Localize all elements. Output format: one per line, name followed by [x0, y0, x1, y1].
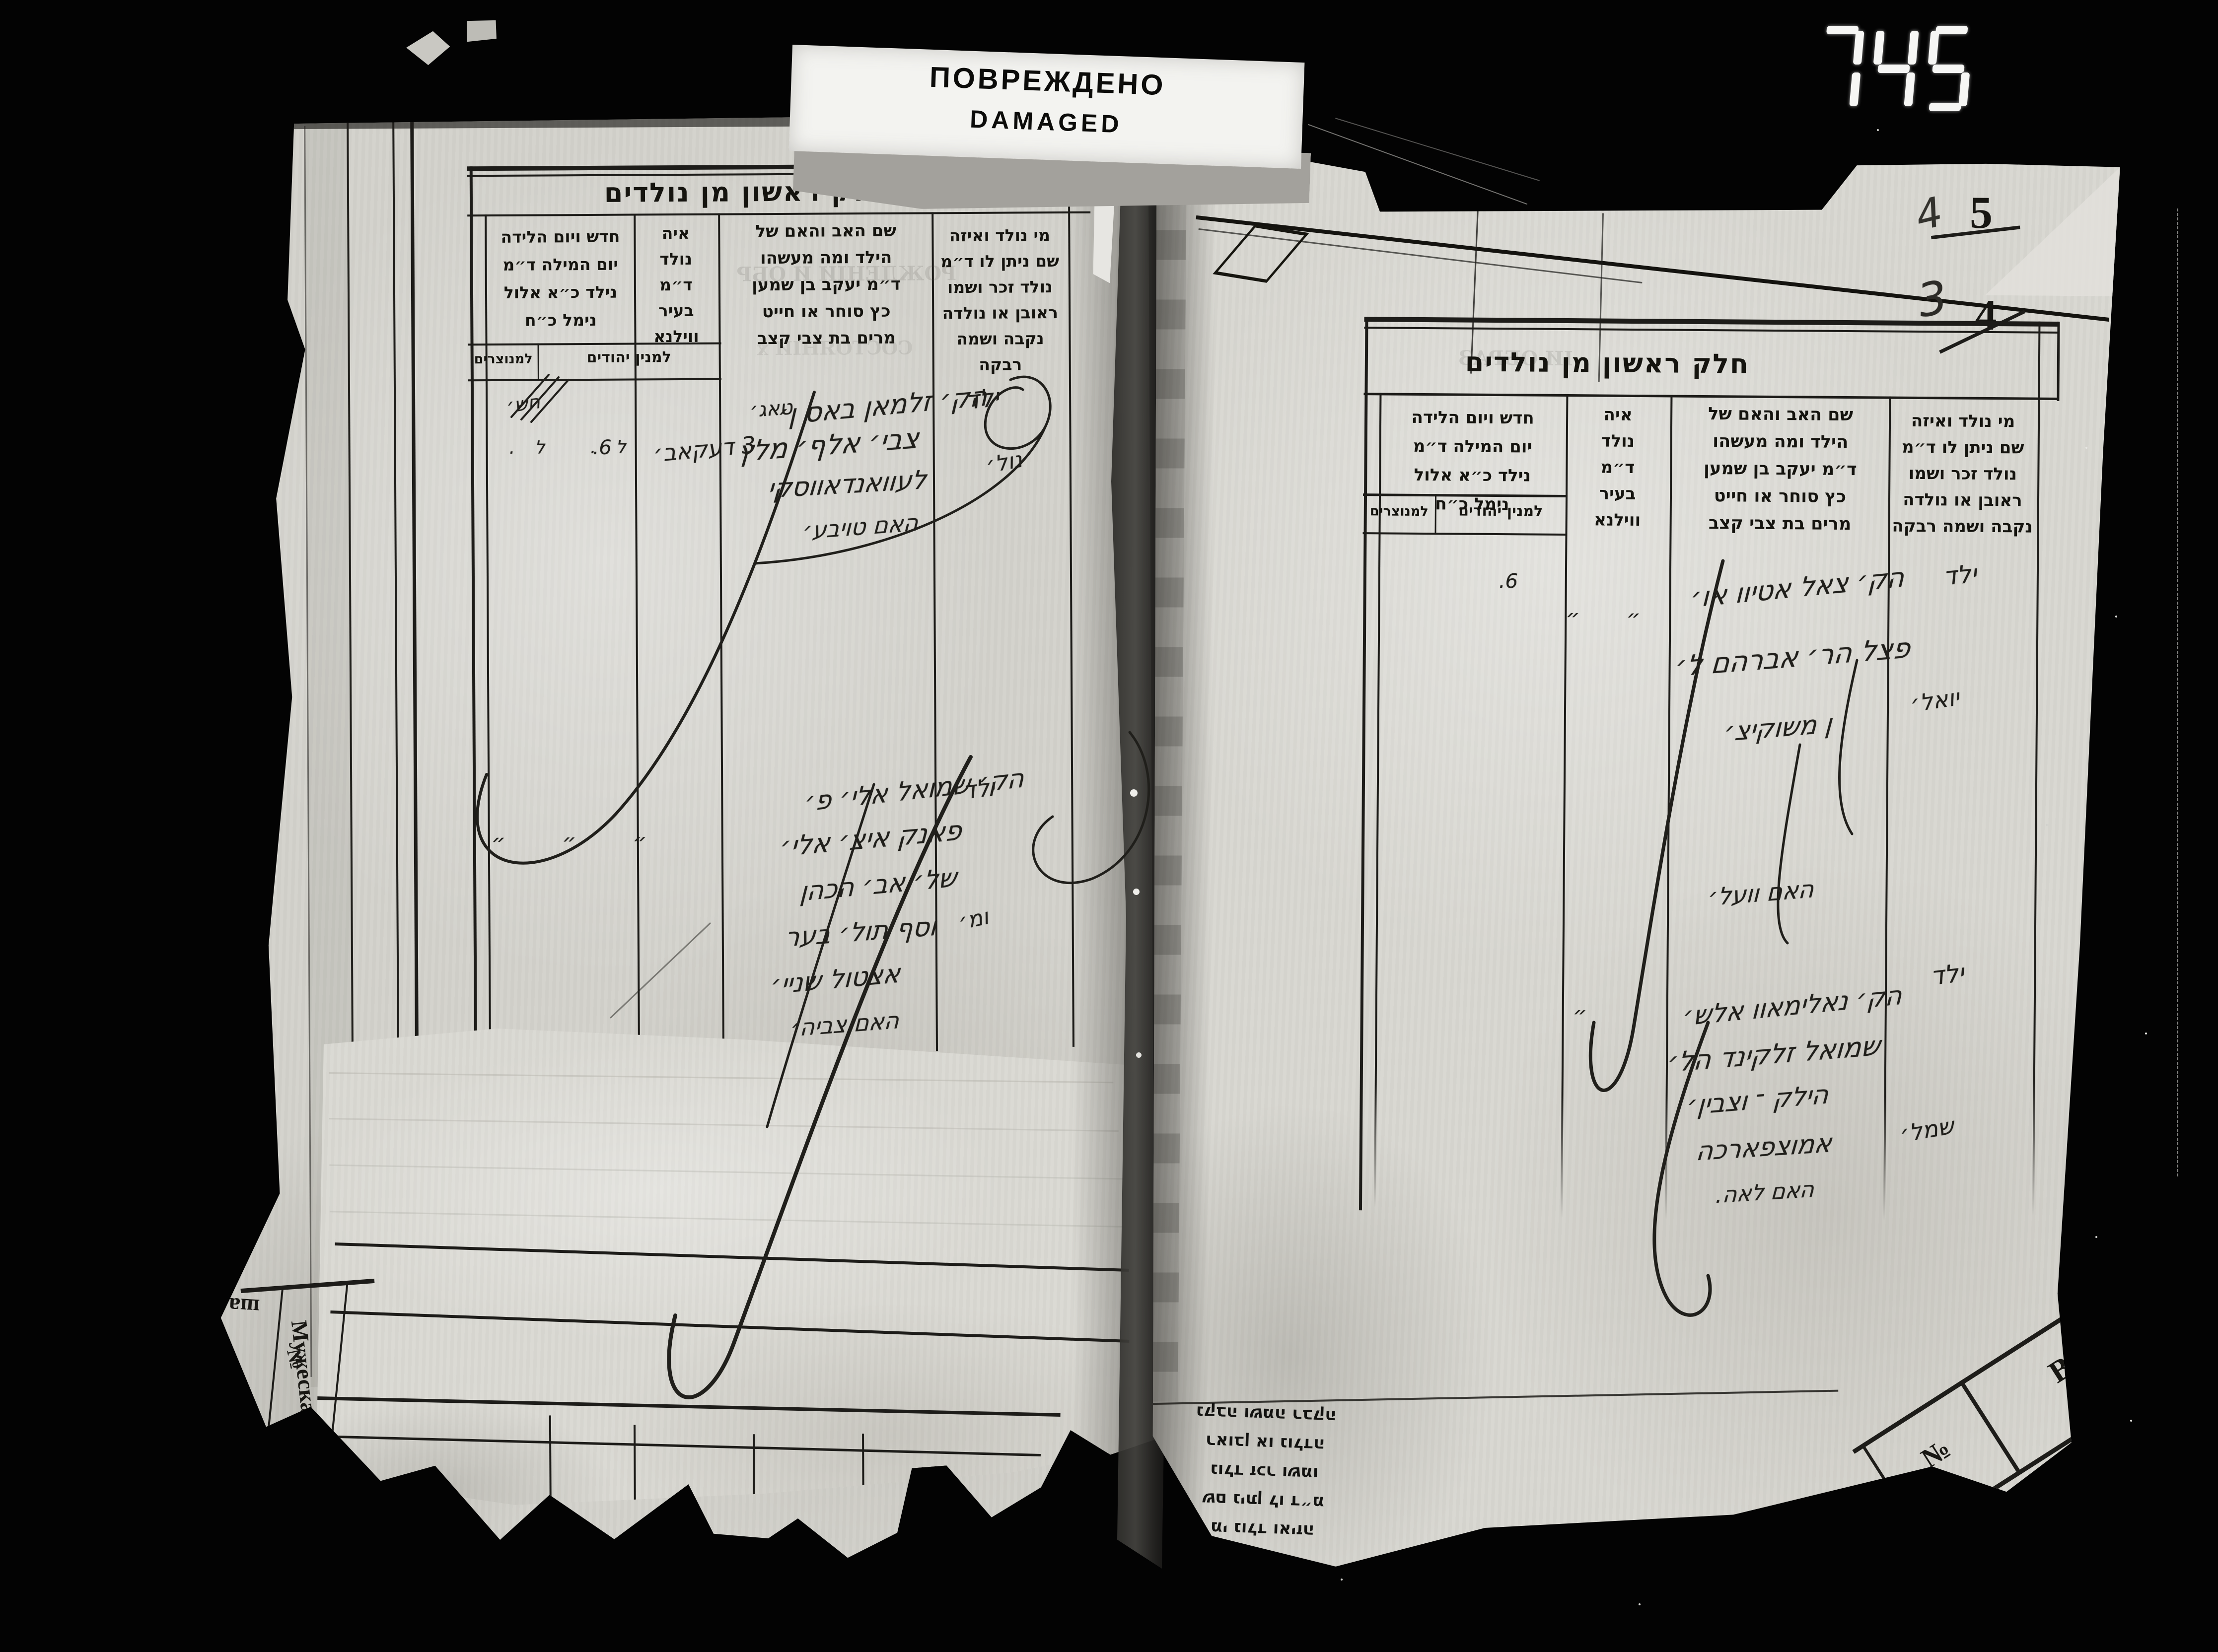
table-vline	[1665, 395, 1673, 1219]
entry-parents-line: האם צביה׳	[789, 1007, 900, 1042]
faint-rule	[330, 1211, 1124, 1228]
col-where-header: איה נולד ד״מ בעיר ווילנא	[637, 220, 715, 350]
entry-parents-line: הילק ־ וצבין׳	[1686, 1080, 1830, 1121]
bleedthrough-text: СОСТОЯНІИ х	[757, 337, 913, 360]
corner-box-line	[1862, 1445, 1921, 1536]
col-parents-header: שם האב והאם של הילד ומה מעשהו ד״מ יעקב ב…	[1675, 401, 1885, 539]
segment	[1928, 31, 1939, 65]
entry-who-name: נול׳	[984, 447, 1024, 479]
entry-ditto: ״	[1573, 1002, 1587, 1028]
segment	[1929, 103, 1961, 111]
segment	[1904, 72, 1915, 106]
subheader-bottom-line	[1362, 532, 1567, 536]
col-date-header: חדש ויום הלידה יום המילה ד״מ נילד כ״א אל…	[491, 223, 630, 335]
entry-dittos: ״ ״	[1566, 605, 1660, 631]
entry-who-name: שמל׳	[1898, 1112, 1956, 1147]
fold-hole	[1130, 789, 1138, 797]
film-scratch	[2177, 208, 2178, 1176]
dark-rule	[321, 1435, 1041, 1456]
segment	[1908, 31, 1919, 65]
dark-rule	[335, 1242, 1129, 1272]
sub-christian-calendar: למנוצרים	[469, 351, 538, 367]
damaged-label-english: DAMAGED	[789, 98, 1302, 145]
right-page: ІИ ОБРАЗ 4 5 3 4 חלק ראשון מן נולדים חדש…	[1142, 131, 2125, 1577]
paper-scrap	[404, 28, 453, 69]
table-vline	[1359, 317, 1368, 1210]
entry-parents-line: הק׳ שמואל אלי׳ פ׳	[804, 763, 1025, 818]
stub-vline	[549, 1415, 552, 1564]
entry-parents-line: וסף תול׳ בער	[784, 911, 938, 953]
corner-box-line	[1959, 1380, 2020, 1473]
fold-hole	[1136, 1052, 1142, 1058]
entry-parents-line: אמוצפארכה	[1695, 1128, 1833, 1167]
segment	[1873, 31, 1885, 65]
entry-parents-line: הק׳ זלמאן באס ן׳	[777, 380, 988, 431]
table-vline	[1883, 397, 1891, 1221]
subheader-bottom-line	[468, 378, 721, 382]
table-vline	[718, 213, 724, 1052]
entry-parents-line: של׳ אב׳ הכהן	[799, 863, 958, 907]
damaged-label-russian: ПОВРЕЖДЕНО	[791, 56, 1304, 107]
segment	[1849, 72, 1860, 106]
sub-christian-calendar: למנוצרים	[1364, 503, 1434, 519]
segment	[1853, 31, 1864, 65]
paper-scrap	[460, 15, 499, 47]
folio-counter-display	[1818, 26, 1982, 111]
entry-parents-line: האם וועל׳	[1707, 875, 1815, 912]
fold-hole	[1133, 889, 1140, 895]
stub-vline	[862, 1434, 864, 1573]
segment	[1935, 26, 1968, 34]
dust-specks	[2085, 447, 2087, 449]
dark-rule	[330, 1310, 1129, 1343]
entry-parents-line: האם לאה.	[1715, 1176, 1815, 1208]
sub-jewish-calendar: למנין יהודים	[540, 348, 718, 367]
entry-parents-line: פצל הר׳ אברהם ל׳	[1673, 632, 1912, 684]
corner-box-line	[1910, 1390, 2146, 1544]
entry-dittos: ״ ״ ״	[492, 829, 672, 855]
stamp-box-line	[262, 1289, 284, 1482]
col-where-header: איה נולד ד״מ בעיר ווילנא	[1569, 402, 1667, 534]
left-page: חלק ראשון מן נולדים חדש ויום הלידה יום ה…	[210, 112, 1158, 1611]
entry-parents-line: האם טויבע׳	[802, 509, 919, 545]
table-vline	[470, 166, 477, 1055]
flipped-scrap: шал	[215, 1292, 260, 1321]
faint-rule	[329, 1118, 1119, 1132]
entry-parents-line: שמואל זלקינד הל׳	[1666, 1030, 1882, 1078]
segment	[1826, 26, 1859, 34]
title-bottom-line	[1363, 393, 2059, 400]
col-who-header: מי נולד ואיזה שם ניתן לו ד״מ נולד זכר וש…	[1891, 408, 2034, 541]
table-top-line	[1364, 317, 2059, 327]
col-who-header: מי נולד ואיזה שם ניתן לו ד״מ נולד זכר וש…	[935, 222, 1065, 378]
table-vline	[2057, 322, 2060, 401]
entry-date-number: 6.	[1499, 570, 1518, 593]
entry-who-name: ומ׳	[956, 904, 991, 935]
paper-texture	[314, 1025, 1141, 1576]
corner-curl	[1985, 166, 2120, 296]
dark-rule	[316, 1396, 1061, 1417]
sub-jewish-calendar: למנין יהודים	[1437, 502, 1564, 520]
entry-parents-line: אצטול שניי׳	[770, 959, 901, 1001]
corner-number-sign: №	[1916, 1433, 1956, 1474]
entry-parents-line: לעוואנדאווסקי	[766, 465, 928, 504]
entry-who: ילד	[1942, 559, 1978, 591]
segment	[1877, 65, 1910, 73]
table-vline	[485, 214, 491, 1053]
entry-parents-line: הק׳ נאלימאוו אלש׳	[1682, 980, 1903, 1032]
subheader-divider	[1435, 494, 1437, 533]
title-bottom-line	[467, 211, 1090, 217]
stub-vline	[634, 1425, 637, 1574]
page-number-handwritten: 4	[1911, 188, 1947, 240]
seven-segment-digit	[1924, 26, 1974, 111]
torn-ruled-fragment	[314, 1025, 1141, 1576]
stub-vline	[753, 1434, 756, 1583]
register-title: חלק ראשון מן נולדים	[1419, 346, 1796, 380]
faint-rule	[329, 1072, 1113, 1083]
segment	[1958, 72, 1970, 106]
corner-letter: В	[2043, 1350, 2079, 1390]
entry-who-name: יואל׳	[1909, 684, 1961, 717]
archival-scan-page: חלק ראשון מן נולדים חדש ויום הלידה יום ה…	[0, 0, 2218, 1652]
entry-date-number: 6.	[593, 436, 612, 459]
subheader-divider	[538, 344, 539, 380]
page-number-handwritten: 3	[1914, 271, 1951, 328]
faint-rule	[329, 1165, 1124, 1180]
seven-segment-digit	[1814, 26, 1864, 111]
seven-segment-digit	[1869, 26, 1919, 111]
segment	[1932, 65, 1964, 73]
bleedthrough-text: РОЖДЕНІИ И ОБР	[737, 262, 957, 286]
entry-parents-line: הק׳ צאל אטיוו או׳	[1690, 561, 1905, 614]
entry-parents-line: ן משוקיצ׳	[1723, 709, 1833, 748]
damaged-label: ПОВРЕЖДЕНО DAMAGED	[789, 45, 1305, 169]
entry-who: ילד	[1929, 959, 1965, 991]
entry-jewish-date: חש׳	[505, 391, 541, 417]
flipped-scrap: го	[224, 1242, 244, 1266]
entry-parents-line: צבי׳ אלף׳ מלץ	[736, 422, 921, 468]
table-top-line2	[1364, 327, 2059, 334]
entry-date-marks: ל. ל.	[509, 437, 646, 458]
corner-form-box: № В	[1842, 1278, 2172, 1571]
